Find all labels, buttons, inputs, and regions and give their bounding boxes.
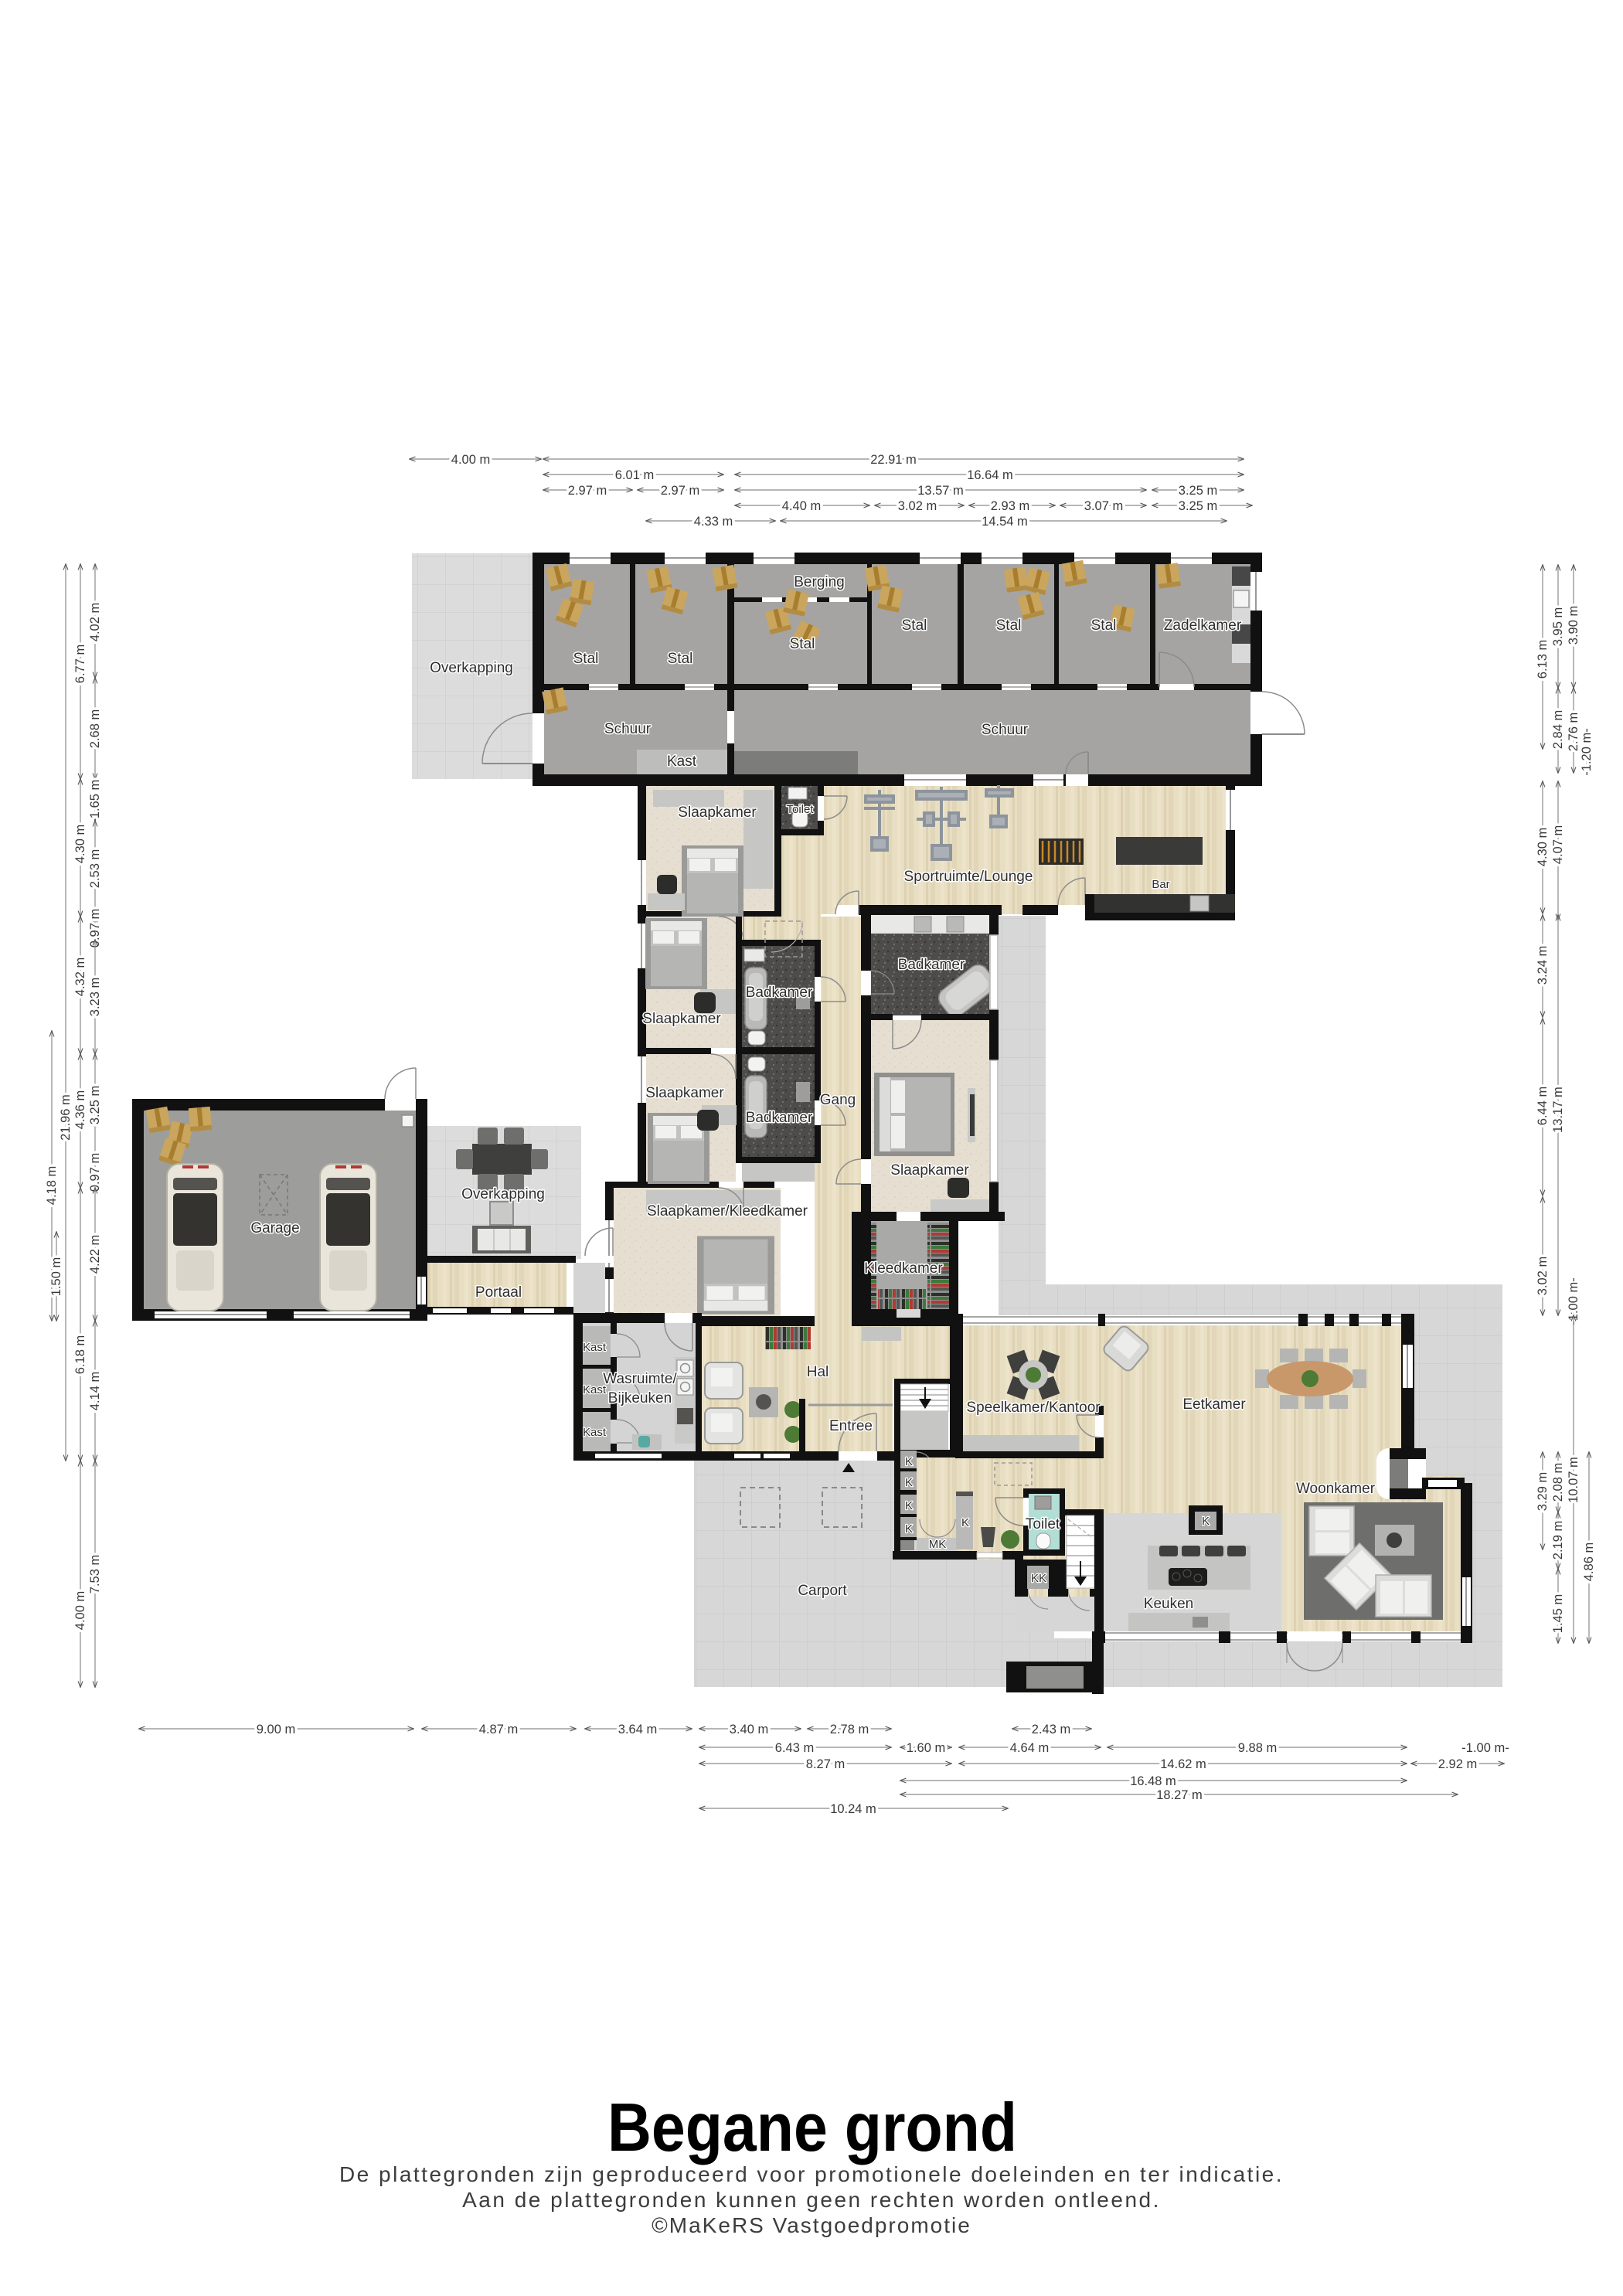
svg-text:Toilet: Toilet xyxy=(1026,1516,1060,1532)
svg-text:©MaKeRS Vastgoedpromotie: ©MaKeRS Vastgoedpromotie xyxy=(652,2213,971,2237)
svg-text:Kleedkamer: Kleedkamer xyxy=(864,1260,943,1277)
svg-text:Schuur: Schuur xyxy=(982,722,1029,738)
svg-text:3.95 m: 3.95 m xyxy=(1551,607,1565,646)
svg-text:KK: KK xyxy=(1031,1572,1046,1585)
svg-text:2.84 m: 2.84 m xyxy=(1551,710,1565,749)
svg-text:Wasruimte/: Wasruimte/ xyxy=(603,1371,677,1387)
svg-text:21.96 m: 21.96 m xyxy=(59,1094,73,1141)
svg-text:4.00 m: 4.00 m xyxy=(451,453,490,467)
svg-text:4.36 m: 4.36 m xyxy=(73,1090,87,1129)
svg-text:2.76 m: 2.76 m xyxy=(1567,713,1580,751)
svg-text:4.30 m: 4.30 m xyxy=(1536,828,1550,866)
svg-text:9.88 m: 9.88 m xyxy=(1238,1741,1277,1755)
svg-text:2.78 m: 2.78 m xyxy=(830,1723,869,1736)
svg-text:1.65 m: 1.65 m xyxy=(88,780,102,818)
svg-text:2.97 m: 2.97 m xyxy=(568,484,607,498)
svg-text:Slaapkamer: Slaapkamer xyxy=(642,1011,721,1027)
svg-text:1.45 m: 1.45 m xyxy=(1551,1594,1565,1633)
svg-text:Overkapping: Overkapping xyxy=(461,1186,545,1202)
svg-text:6.43 m: 6.43 m xyxy=(775,1741,814,1755)
svg-text:K: K xyxy=(961,1516,969,1529)
svg-text:14.54 m: 14.54 m xyxy=(982,515,1028,529)
svg-text:10.24 m: 10.24 m xyxy=(830,1802,876,1816)
svg-text:9.00 m: 9.00 m xyxy=(257,1723,295,1736)
svg-text:10.07 m: 10.07 m xyxy=(1567,1457,1580,1503)
svg-text:Stal: Stal xyxy=(902,617,927,634)
svg-text:3.02 m: 3.02 m xyxy=(1536,1257,1550,1295)
svg-text:Kast: Kast xyxy=(583,1426,607,1439)
svg-text:Overkapping: Overkapping xyxy=(430,660,513,676)
svg-text:3.40 m: 3.40 m xyxy=(730,1723,768,1736)
svg-text:Kast: Kast xyxy=(583,1341,607,1354)
svg-text:2.53 m: 2.53 m xyxy=(88,849,102,888)
svg-text:2.93 m: 2.93 m xyxy=(991,499,1029,513)
svg-text:Schuur: Schuur xyxy=(604,721,652,737)
svg-text:4.86 m: 4.86 m xyxy=(1582,1543,1596,1581)
svg-text:-1.00 m-: -1.00 m- xyxy=(1461,1741,1509,1755)
svg-text:Slaapkamer: Slaapkamer xyxy=(645,1085,724,1101)
svg-text:Berging: Berging xyxy=(794,574,845,590)
svg-text:6.01 m: 6.01 m xyxy=(615,468,654,482)
svg-text:Bijkeuken: Bijkeuken xyxy=(608,1390,672,1407)
svg-text:Stal: Stal xyxy=(668,651,693,667)
svg-text:3.07 m: 3.07 m xyxy=(1084,499,1123,513)
svg-text:4.22 m: 4.22 m xyxy=(88,1235,102,1274)
svg-text:3.25 m: 3.25 m xyxy=(1179,499,1217,513)
svg-text:Garage: Garage xyxy=(250,1220,299,1236)
svg-text:3.23 m: 3.23 m xyxy=(88,978,102,1016)
svg-text:4.64 m: 4.64 m xyxy=(1010,1741,1049,1755)
svg-text:22.91 m: 22.91 m xyxy=(870,453,917,467)
svg-text:Slaapkamer/Kleedkamer: Slaapkamer/Kleedkamer xyxy=(647,1203,808,1219)
svg-text:4.02 m: 4.02 m xyxy=(88,603,102,641)
svg-text:K: K xyxy=(905,1499,913,1512)
svg-text:3.90 m: 3.90 m xyxy=(1567,606,1580,645)
svg-text:MK: MK xyxy=(929,1538,947,1551)
svg-text:3.29 m: 3.29 m xyxy=(1536,1472,1550,1511)
svg-text:Entree: Entree xyxy=(829,1418,873,1434)
svg-text:8.27 m: 8.27 m xyxy=(806,1757,845,1771)
svg-text:3.25 m: 3.25 m xyxy=(1179,484,1217,498)
svg-text:Woonkamer: Woonkamer xyxy=(1296,1481,1376,1497)
svg-text:K: K xyxy=(1202,1515,1210,1528)
svg-text:2.68 m: 2.68 m xyxy=(88,709,102,748)
svg-text:Eetkamer: Eetkamer xyxy=(1182,1396,1246,1413)
svg-text:4.07 m: 4.07 m xyxy=(1551,825,1565,864)
svg-text:Zadelkamer: Zadelkamer xyxy=(1164,617,1242,634)
svg-text:Begane grond: Begane grond xyxy=(607,2089,1017,2165)
svg-text:18.27 m: 18.27 m xyxy=(1156,1788,1203,1802)
svg-text:Speelkamer/Kantoor: Speelkamer/Kantoor xyxy=(966,1400,1101,1416)
svg-text:Kast: Kast xyxy=(667,753,697,770)
svg-text:Sportruimte/Lounge: Sportruimte/Lounge xyxy=(904,869,1033,885)
svg-text:K: K xyxy=(905,1522,913,1536)
svg-text:Keuken: Keuken xyxy=(1144,1596,1193,1612)
svg-text:4.30 m: 4.30 m xyxy=(73,825,87,863)
svg-text:Badkamer: Badkamer xyxy=(746,1110,813,1126)
svg-text:3.02 m: 3.02 m xyxy=(898,499,937,513)
svg-text:7.53 m: 7.53 m xyxy=(88,1555,102,1594)
svg-text:Slaapkamer: Slaapkamer xyxy=(890,1162,969,1179)
svg-text:1.50 m: 1.50 m xyxy=(49,1257,63,1296)
svg-text:4.00 m: 4.00 m xyxy=(73,1591,87,1630)
svg-text:13.57 m: 13.57 m xyxy=(917,484,964,498)
svg-text:0.97 m: 0.97 m xyxy=(88,1153,102,1192)
svg-text:2.97 m: 2.97 m xyxy=(661,484,699,498)
svg-text:Stal: Stal xyxy=(573,651,599,667)
svg-text:4.32 m: 4.32 m xyxy=(73,958,87,996)
svg-text:13.17 m: 13.17 m xyxy=(1551,1087,1565,1133)
svg-text:6.77 m: 6.77 m xyxy=(73,645,87,683)
svg-text:Aan de plattegronden kunnen ge: Aan de plattegronden kunnen geen rechten… xyxy=(462,2188,1161,2212)
svg-text:4.87 m: 4.87 m xyxy=(479,1723,518,1736)
svg-text:2.08 m: 2.08 m xyxy=(1551,1463,1565,1502)
svg-text:2.92 m: 2.92 m xyxy=(1438,1757,1477,1771)
svg-text:2.43 m: 2.43 m xyxy=(1032,1723,1070,1736)
svg-text:16.48 m: 16.48 m xyxy=(1130,1774,1176,1788)
svg-text:6.18 m: 6.18 m xyxy=(73,1335,87,1374)
svg-text:3.64 m: 3.64 m xyxy=(618,1723,657,1736)
svg-text:K: K xyxy=(905,1476,913,1489)
svg-text:Bar: Bar xyxy=(1152,878,1169,891)
svg-text:4.33 m: 4.33 m xyxy=(694,515,733,529)
svg-text:6.44 m: 6.44 m xyxy=(1536,1087,1550,1125)
svg-text:Stal: Stal xyxy=(790,636,815,652)
svg-text:Stal: Stal xyxy=(996,617,1022,634)
svg-text:14.62 m: 14.62 m xyxy=(1160,1757,1206,1771)
svg-text:Stal: Stal xyxy=(1091,617,1117,634)
svg-text:4.40 m: 4.40 m xyxy=(782,499,821,513)
svg-text:Slaapkamer: Slaapkamer xyxy=(678,804,757,821)
svg-text:-1.20 m-: -1.20 m- xyxy=(1580,728,1594,775)
svg-text:4.18 m: 4.18 m xyxy=(45,1166,59,1205)
svg-text:1.60 m: 1.60 m xyxy=(907,1741,945,1755)
svg-text:4.14 m: 4.14 m xyxy=(88,1372,102,1410)
svg-text:Hal: Hal xyxy=(807,1364,829,1380)
svg-text:Kast: Kast xyxy=(583,1383,607,1396)
svg-text:Portaal: Portaal xyxy=(475,1284,522,1301)
svg-text:2.19 m: 2.19 m xyxy=(1551,1521,1565,1560)
svg-text:Badkamer: Badkamer xyxy=(746,985,813,1001)
svg-text:Toilet: Toilet xyxy=(786,803,814,816)
svg-text:K: K xyxy=(905,1455,913,1468)
svg-text:Badkamer: Badkamer xyxy=(898,957,965,973)
svg-text:Gang: Gang xyxy=(820,1092,856,1108)
svg-text:16.64 m: 16.64 m xyxy=(967,468,1013,482)
svg-text:3.24 m: 3.24 m xyxy=(1536,946,1550,985)
svg-text:6.13 m: 6.13 m xyxy=(1536,640,1550,679)
svg-text:Carport: Carport xyxy=(798,1583,847,1599)
svg-text:De plattegronden zijn geproduc: De plattegronden zijn geproduceerd voor … xyxy=(339,2162,1284,2186)
svg-text:3.25 m: 3.25 m xyxy=(88,1086,102,1124)
